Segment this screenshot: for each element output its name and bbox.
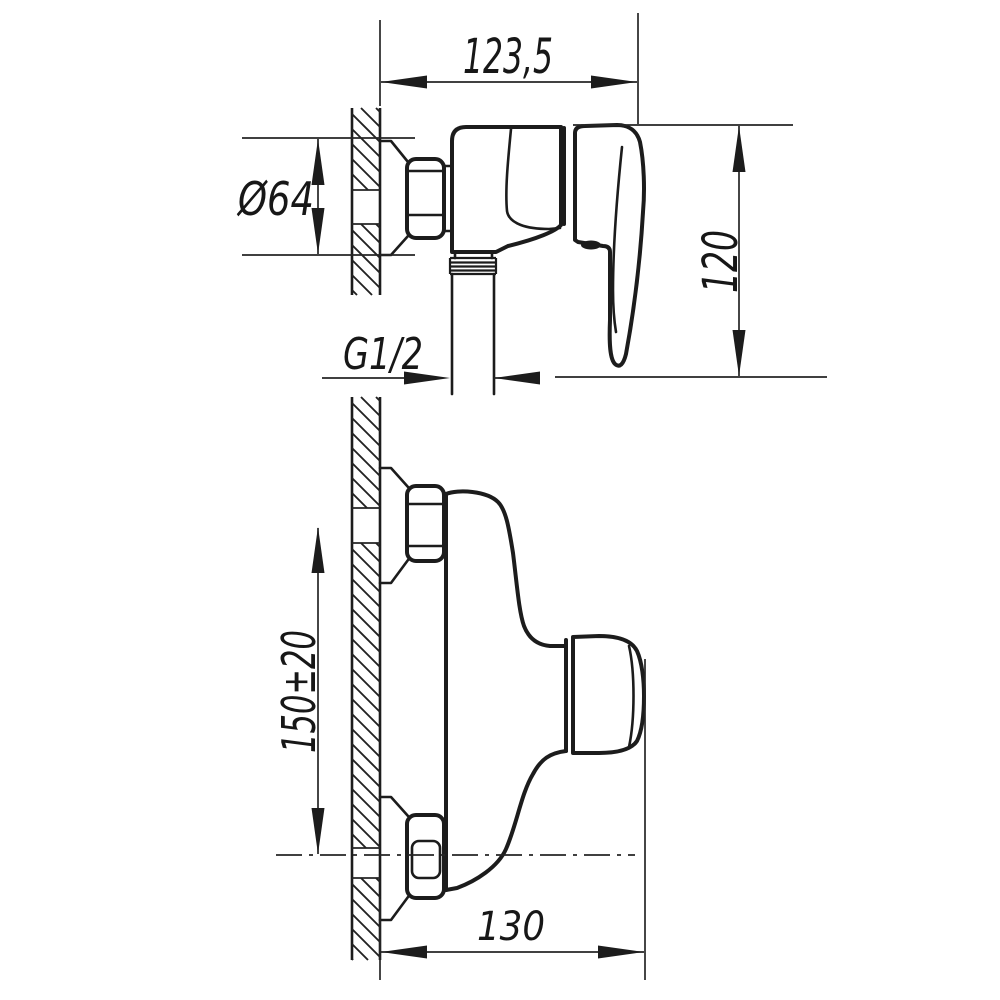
handle-indicator-cap (581, 241, 601, 250)
side-view: 123,5 Ø64 120 G1/2 (236, 13, 827, 394)
flange-lower-bottom (380, 797, 408, 920)
dim-thread-size-label: G1/2 (343, 329, 423, 380)
wall-hatching-upper (352, 108, 380, 295)
dim-body-height-label: 120 (693, 230, 749, 293)
connection-nut-bottom (407, 815, 444, 898)
dim-flange-diameter-label: Ø64 (236, 172, 314, 226)
dim-top-width: 123,5 (380, 13, 638, 124)
mixer-body (452, 127, 564, 252)
wall-section-lower (352, 397, 380, 960)
wall-section-upper (352, 108, 380, 295)
dim-connection-spacing-label: 150±20 (272, 630, 326, 753)
technical-drawing: 123,5 Ø64 120 G1/2 (0, 0, 1000, 1000)
dim-depth-label: 130 (477, 904, 545, 950)
connection-nut-upper (407, 159, 452, 238)
mixer-body-plan (446, 491, 573, 890)
dim-depth: 130 (380, 659, 645, 980)
wall-hatching-lower (352, 397, 380, 960)
outlet-pipe (452, 274, 494, 394)
flange-lower-top (380, 468, 408, 583)
drawing-canvas: 123,5 Ø64 120 G1/2 (0, 0, 1000, 1000)
lever-handle (575, 125, 644, 366)
dim-thread-size: G1/2 (322, 329, 540, 385)
handle-knob (573, 636, 644, 753)
flange-upper (380, 141, 408, 255)
body-cover-seam (506, 129, 560, 229)
plan-view: 150±20 130 (272, 397, 645, 980)
dim-top-width-label: 123,5 (463, 29, 553, 85)
dim-flange-diameter: Ø64 (236, 138, 415, 255)
handle-inner-contour (613, 147, 622, 332)
dim-body-height: 120 (555, 125, 827, 377)
shower-outlet (450, 252, 496, 394)
knob-inner-contour (629, 646, 634, 747)
dim-connection-spacing: 150±20 (272, 527, 326, 854)
connection-nut-top (407, 486, 444, 561)
